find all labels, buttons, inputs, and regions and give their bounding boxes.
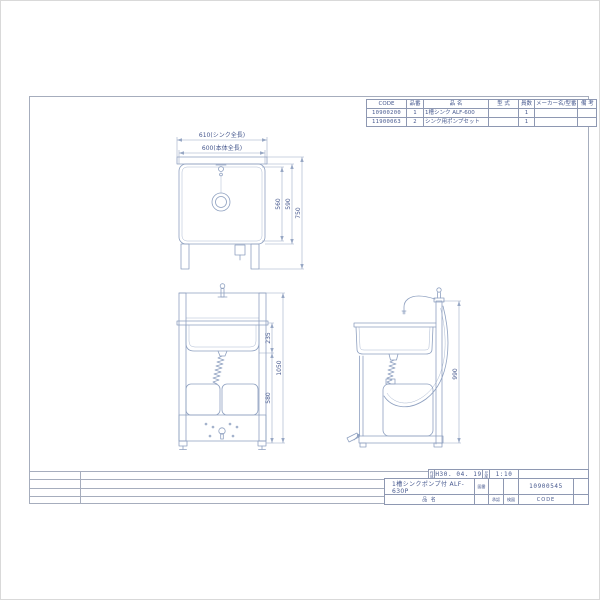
front-faucet bbox=[218, 284, 227, 297]
part-code: 11900063 bbox=[367, 118, 407, 127]
drawing-no-label: 図番 bbox=[474, 478, 489, 495]
parts-table: CODE 品番 品 名 型 式 員数 メーカー名/型番 備 考 10900200… bbox=[366, 99, 597, 127]
col-header-qty: 員数 bbox=[519, 100, 535, 109]
part-model bbox=[489, 109, 519, 118]
title-block-spacer bbox=[573, 494, 589, 505]
part-item-no: 1 bbox=[407, 109, 424, 118]
front-casters bbox=[179, 441, 266, 450]
dim-body-length: 600(本体全長) bbox=[202, 144, 242, 152]
plan-faucet bbox=[216, 165, 226, 193]
side-tank bbox=[383, 379, 433, 436]
parts-table-row: 10900200 1 1槽シンク ALF-600 1 bbox=[367, 109, 597, 118]
front-view: 235 580 1050 bbox=[166, 283, 311, 459]
part-remarks bbox=[578, 118, 597, 127]
part-qty: 1 bbox=[519, 118, 535, 127]
drawing-code: 10900545 bbox=[518, 478, 574, 495]
parts-table-row: 11900063 2 シンク用ポンプセット 1 bbox=[367, 118, 597, 127]
front-sink-basin bbox=[177, 321, 268, 356]
check-stamp-cell bbox=[503, 478, 519, 495]
approved-label: 承認 bbox=[488, 494, 504, 505]
plan-view: 610(シンク全長) 600(本体全長) 560 590 750 bbox=[166, 127, 316, 276]
side-base bbox=[359, 436, 443, 447]
dim-body-depth: 590 bbox=[285, 198, 292, 210]
front-base-cabinet bbox=[179, 415, 266, 441]
drawing-sheet: CODE 品番 品 名 型 式 員数 メーカー名/型番 備 考 10900200… bbox=[0, 0, 600, 600]
plan-drain-ring bbox=[212, 193, 230, 211]
part-code: 10900200 bbox=[367, 109, 407, 118]
col-header-name: 品 名 bbox=[424, 100, 489, 109]
front-dimensions: 235 580 1050 bbox=[259, 293, 285, 443]
part-maker bbox=[535, 109, 578, 118]
dim-total-depth: 750 bbox=[295, 207, 302, 219]
title-block-spacer bbox=[474, 494, 489, 505]
dim-basin-height: 235 bbox=[265, 332, 272, 344]
checked-label: 検図 bbox=[503, 494, 519, 505]
side-pump-hoses bbox=[384, 306, 448, 407]
col-header-remarks: 備 考 bbox=[578, 100, 597, 109]
part-model bbox=[489, 118, 519, 127]
product-name: 1槽シンクポンプ付 ALF-630P bbox=[384, 478, 475, 495]
part-remarks bbox=[578, 109, 597, 118]
plan-legs bbox=[181, 244, 259, 269]
title-block-spacer bbox=[573, 478, 589, 495]
approval-stamp-cell bbox=[488, 478, 504, 495]
dim-inner-depth: 560 bbox=[275, 198, 282, 210]
col-header-maker: メーカー名/型番 bbox=[535, 100, 578, 109]
col-header-item-no: 品番 bbox=[407, 100, 424, 109]
front-stand bbox=[179, 293, 266, 441]
side-dimensions: 990 bbox=[443, 301, 461, 443]
part-qty: 1 bbox=[519, 109, 535, 118]
front-drain-hose bbox=[213, 356, 224, 384]
side-backsplash-panel bbox=[436, 301, 442, 444]
plan-sink-body bbox=[177, 157, 267, 244]
side-foot-pedal bbox=[347, 433, 360, 442]
parts-table-header-row: CODE 品番 品 名 型 式 員数 メーカー名/型番 備 考 bbox=[367, 100, 597, 109]
dim-sink-length: 610(シンク全長) bbox=[199, 131, 245, 139]
front-tanks bbox=[186, 384, 258, 415]
side-view: 990 bbox=[346, 286, 476, 459]
part-item-no: 2 bbox=[407, 118, 424, 127]
code-label: CODE bbox=[518, 494, 574, 505]
side-leg bbox=[360, 356, 364, 436]
part-name: 1槽シンク ALF-600 bbox=[424, 109, 489, 118]
col-header-model: 型 式 bbox=[489, 100, 519, 109]
part-name: シンク用ポンプセット bbox=[424, 118, 489, 127]
col-header-code: CODE bbox=[367, 100, 407, 109]
dim-lower-height: 580 bbox=[265, 392, 272, 404]
dim-height: 990 bbox=[452, 368, 459, 380]
plan-dimensions: 610(シンク全長) 600(本体全長) 560 590 750 bbox=[177, 131, 304, 269]
side-sink-basin bbox=[354, 323, 436, 360]
revision-strip-divider bbox=[80, 471, 81, 504]
part-maker bbox=[535, 118, 578, 127]
product-name-label: 品 名 bbox=[384, 494, 475, 505]
dim-total-height: 1050 bbox=[276, 360, 283, 375]
